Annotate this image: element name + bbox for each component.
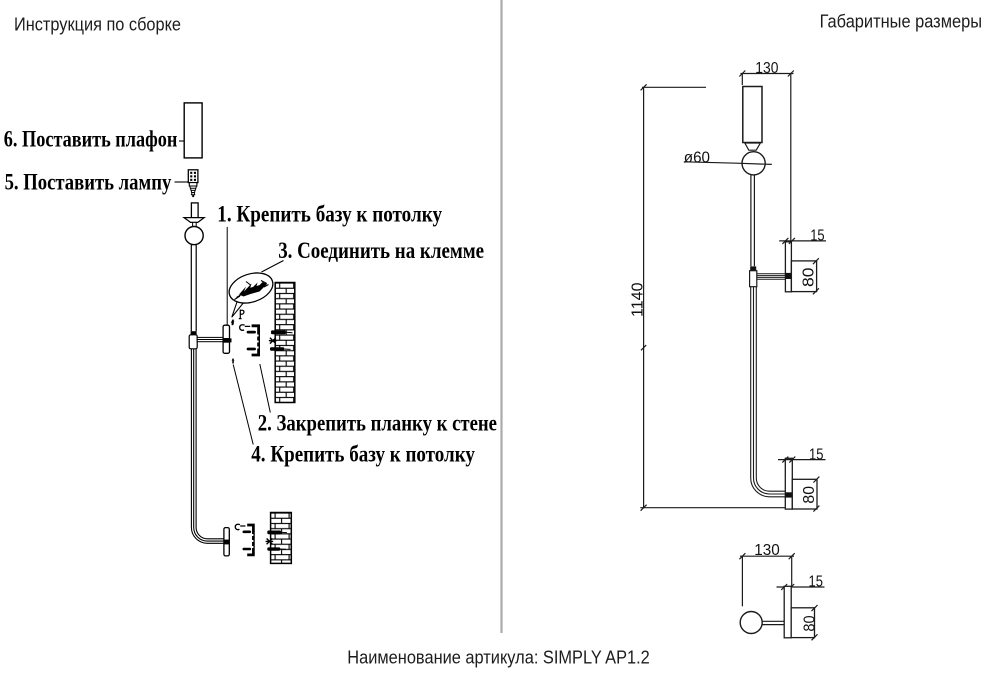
svg-text:Инструкция по сборке: Инструкция по сборке (14, 15, 181, 35)
svg-text:6. Поставить плафон: 6. Поставить плафон (4, 127, 178, 152)
svg-text:15: 15 (809, 446, 823, 463)
svg-text:15: 15 (809, 574, 823, 591)
svg-text:5. Поставить лампу: 5. Поставить лампу (5, 170, 172, 195)
svg-text:130: 130 (755, 60, 778, 77)
svg-text:130: 130 (754, 542, 780, 559)
svg-text:80: 80 (800, 267, 817, 287)
svg-text:ø60: ø60 (684, 150, 711, 167)
svg-text:15: 15 (810, 228, 824, 245)
svg-text:2. Закрепить планку к стене: 2. Закрепить планку к стене (258, 411, 497, 436)
svg-text:Габаритные размеры: Габаритные размеры (820, 11, 982, 31)
svg-text:80: 80 (801, 615, 818, 632)
svg-text:4. Крепить базу к потолку: 4. Крепить базу к потолку (251, 442, 475, 467)
svg-text:3. Соединить на клемме: 3. Соединить на клемме (278, 238, 484, 263)
svg-text:1. Крепить базу к потолку: 1. Крепить базу к потолку (217, 202, 442, 227)
svg-text:80: 80 (801, 486, 818, 504)
svg-text:Наименование артикула: SIMPLY: Наименование артикула: SIMPLY AP1.2 (347, 648, 650, 668)
svg-text:1140: 1140 (629, 282, 646, 317)
